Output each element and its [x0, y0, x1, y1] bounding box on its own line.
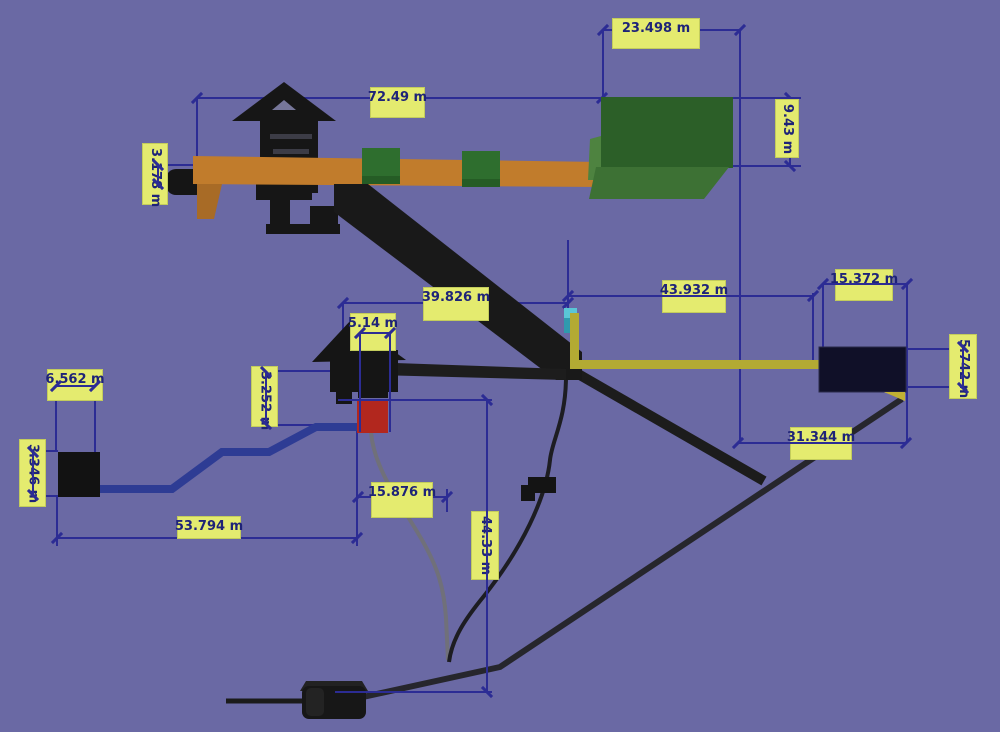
3d-measurement-viewport[interactable]: 23.498 m 72.49 m 9.43 m 3.178 m 39.826 m…	[0, 0, 1000, 732]
dimension-lines-over	[33, 165, 963, 692]
scene-over-layer	[0, 0, 1000, 732]
